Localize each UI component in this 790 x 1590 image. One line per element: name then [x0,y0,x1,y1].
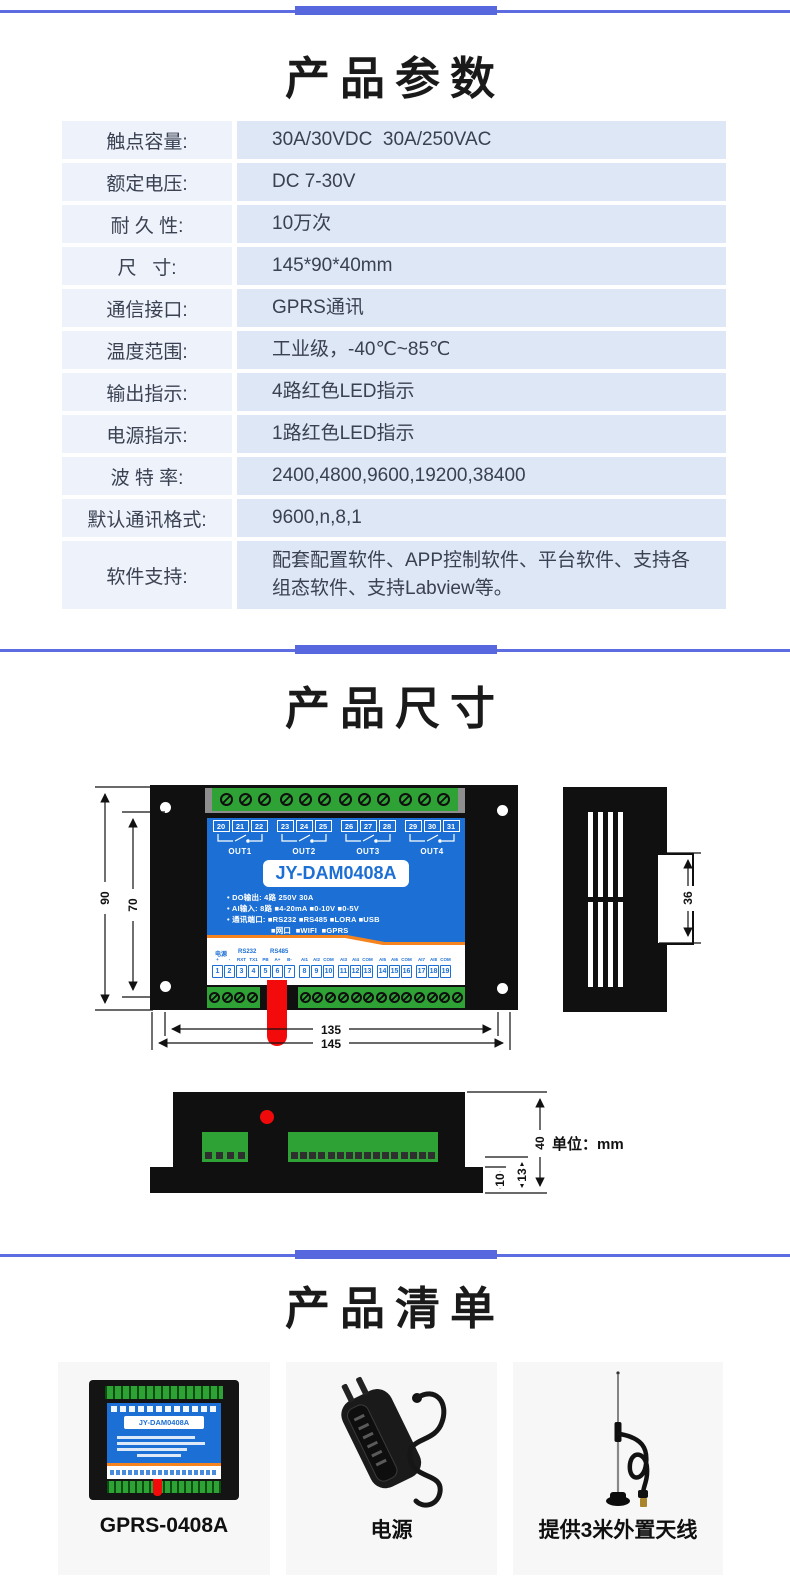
terminal-number: 21 [232,820,249,832]
pin-number: 3 [236,965,247,978]
mini-antenna-connector [153,1479,162,1496]
terminal-number: 22 [251,820,268,832]
spec-row: 额定电压: DC 7-30V [62,163,726,201]
output-terminal-row: 202122 OUT1 232425 OUT2 262728 OUT3 [211,820,461,856]
section-divider [0,6,790,18]
screw [351,992,362,1003]
product-card-power: 电源 [286,1362,497,1575]
spec-table: 触点容量: 30A/30VDC 30A/250VAC 额定电压: DC 7-30… [62,121,726,613]
spec-label: 输出指示: [62,373,232,411]
pin-label: AI2 [313,956,320,964]
pin-column: B-7 [284,956,295,978]
svg-text:40: 40 [533,1136,547,1150]
pin-number: 7 [284,965,295,978]
terminal-pins [291,1152,435,1159]
section-title-product-list: 产品清单 [0,1272,790,1337]
terminal-number: 25 [315,820,332,832]
spec-value: 10万次 [237,205,726,243]
section-title-dimensions: 产品尺寸 [0,672,790,737]
vent-slot [618,902,623,987]
relay-symbol [276,833,332,847]
spec-value: GPRS通讯 [237,289,726,327]
svg-text:10: 10 [493,1173,507,1187]
screw [299,793,312,806]
divider-bar [295,645,497,654]
relay-symbol [404,833,460,847]
terminal-screws [399,793,450,806]
mounting-hole [497,983,508,994]
terminal-number: 29 [405,820,422,832]
vent-slot [588,902,593,987]
screw [300,1152,307,1159]
rs232-header: RS232 [238,949,256,955]
spec-row: 耐 久 性: 10万次 [62,205,726,243]
pin-label: COM [323,956,334,964]
relay-symbol [212,833,268,847]
panel-spec-line: • 通讯端口: ■RS232 ■RS485 ■LORA ■USB [227,914,461,925]
terminal-screws [280,793,331,806]
screw [238,1152,245,1159]
section-divider [0,1250,790,1262]
pin-label: RXT [237,956,246,964]
terminal-number: 20 [213,820,230,832]
screw [220,793,233,806]
spec-value: 1路红色LED指示 [237,415,726,453]
out-label: OUT2 [275,847,333,856]
screw [216,1152,223,1159]
screw [247,992,258,1003]
spec-value: 4路红色LED指示 [237,373,726,411]
top-terminal-strip [205,788,465,813]
screw [309,1152,316,1159]
pin-label: AI6 [391,956,398,964]
spec-row: 电源指示: 1路红色LED指示 [62,415,726,453]
vent-slot [598,902,603,987]
pin-label: COM [362,956,373,964]
screw [318,793,331,806]
screw [280,793,293,806]
pin-label: AI8 [430,956,437,964]
pin-number: 14 [377,965,388,978]
screw [439,992,450,1003]
mini-io-numbers [110,1470,218,1475]
bottom-view-flange [150,1167,483,1193]
device-side-view [563,787,667,1012]
orange-stripe [207,934,465,948]
out-label: OUT4 [403,847,461,856]
pin-number: 16 [401,965,412,978]
spec-row: 输出指示: 4路红色LED指示 [62,373,726,411]
screw [437,793,450,806]
screw [205,1152,212,1159]
pin-label: AI5 [379,956,386,964]
terminal-number: 23 [277,820,294,832]
antenna-image [548,1364,688,1514]
panel-spec-line: • DO输出: 4路 250V 30A [227,892,461,903]
pin-column: AI717 [416,956,427,978]
svg-text:70: 70 [126,898,140,912]
screw [355,1152,362,1159]
pin-number: 12 [350,965,361,978]
svg-text:135: 135 [321,1023,341,1037]
pin-column: COM13 [362,956,373,978]
screw [338,992,349,1003]
product-card-module: JY-DAM0408A GPRS-0408A [58,1362,270,1575]
screw [391,1152,398,1159]
pin-column: PB5 [260,956,271,978]
device-front-view: 202122 OUT1 232425 OUT2 262728 OUT3 [150,785,518,1010]
spec-row: 软件支持: 配套配置软件、APP控制软件、平台软件、支持各组态软件、支持Labv… [62,541,726,609]
vent-slot [608,812,613,897]
pin-number: 11 [338,965,349,978]
mini-terminal-numbers [111,1406,217,1412]
spec-value: 2400,4800,9600,19200,38400 [237,457,726,495]
pin-column: AI18 [299,956,310,978]
pin-row: +1-2RXT3TX14PB5A+6B-7 AI18AI29COM10 AI31… [212,956,451,978]
pin-label: + [216,956,219,964]
divider-bar [295,1250,497,1259]
rs485-header: RS485 [270,949,288,955]
section-title-parameters: 产品参数 [0,42,790,107]
screw [234,992,245,1003]
spec-label: 耐 久 性: [62,205,232,243]
panel-spec-list: • DO输出: 4路 250V 30A• AI输入: 8路 ■4-20mA ■0… [227,892,461,936]
io-label-strip: 电源 RS232 RS485 +1-2RXT3TX14PB5A+6B-7 AI1… [207,948,465,985]
spec-row: 通信接口: GPRS通讯 [62,289,726,327]
spec-value: 30A/30VDC 30A/250VAC [237,121,726,159]
bottom-view-terminal [288,1132,438,1162]
pin-column: +1 [212,956,223,978]
screw [209,992,220,1003]
output-group: 232425 OUT2 [275,820,333,856]
screw [346,1152,353,1159]
power-adapter-image [321,1368,461,1513]
screw [339,793,352,806]
screw [358,793,371,806]
mini-spec-line [137,1454,181,1457]
product-label: GPRS-0408A [58,1514,270,1538]
vent-slot [598,812,603,897]
screw [389,992,400,1003]
pin-number: 15 [389,965,400,978]
output-group: 262728 OUT3 [339,820,397,856]
pin-label: COM [401,956,412,964]
out-label: OUT3 [339,847,397,856]
screw [427,992,438,1003]
pin-number: 18 [428,965,439,978]
pin-column: -2 [224,956,235,978]
screw [300,992,311,1003]
bottom-terminal-left [207,987,260,1008]
screw [377,793,390,806]
terminal-pins [205,1152,245,1159]
output-group: 202122 OUT1 [211,820,269,856]
section-divider [0,645,790,657]
din-clip-side [656,853,694,945]
spec-label: 额定电压: [62,163,232,201]
pin-column: COM19 [440,956,451,978]
pin-column: AI514 [377,956,388,978]
mini-top-terminals [105,1386,223,1399]
screw [401,1152,408,1159]
pin-label: COM [440,956,451,964]
spec-label: 尺 寸: [62,247,232,285]
spec-label: 波 特 率: [62,457,232,495]
spec-value: 配套配置软件、APP控制软件、平台软件、支持各组态软件、支持Labview等。 [237,541,726,609]
pin-number: 9 [311,965,322,978]
screw [376,992,387,1003]
screw [373,1152,380,1159]
screw [363,992,374,1003]
product-detail-page: 产品参数 触点容量: 30A/30VDC 30A/250VAC 额定电压: DC… [0,0,790,1590]
spec-row: 温度范围: 工业级，-40℃~85℃ [62,331,726,369]
mounting-hole [160,802,171,813]
pin-label: B- [287,956,292,964]
screw [452,992,463,1003]
screw [318,1152,325,1159]
product-image-module: JY-DAM0408A [89,1376,239,1504]
screw [222,992,233,1003]
vent-slot [588,812,593,897]
spec-value: 9600,n,8,1 [237,499,726,537]
model-plate: JY-DAM0408A [263,860,409,887]
terminal-number: 27 [360,820,377,832]
screw [337,1152,344,1159]
divider-bar [295,6,497,15]
svg-text:145: 145 [321,1037,341,1051]
spec-row: 尺 寸: 145*90*40mm [62,247,726,285]
svg-text:90: 90 [98,891,112,905]
antenna-connector [267,980,287,1046]
mini-front-panel: JY-DAM0408A [107,1403,221,1463]
pin-number: 2 [224,965,235,978]
screw [227,1152,234,1159]
pin-column: AI412 [350,956,361,978]
screw [325,992,336,1003]
front-panel: 202122 OUT1 232425 OUT2 262728 OUT3 [207,818,465,948]
terminal-block [212,788,458,811]
screw [401,992,412,1003]
pin-number: 5 [260,965,271,978]
terminal-number: 30 [424,820,441,832]
spec-label: 温度范围: [62,331,232,369]
out-label: OUT1 [211,847,269,856]
pin-number: 4 [248,965,259,978]
vent-slot [608,902,613,987]
screw [399,793,412,806]
screw [382,1152,389,1159]
pin-number: 10 [323,965,334,978]
screw [291,1152,298,1159]
pin-label: AI1 [301,956,308,964]
bottom-terminal-right [298,987,465,1008]
spec-label: 软件支持: [62,541,232,609]
spec-value: 145*90*40mm [237,247,726,285]
screw [312,992,323,1003]
pin-label: PB [262,956,268,964]
terminal-number: 26 [341,820,358,832]
pin-column: A+6 [272,956,283,978]
screw [328,1152,335,1159]
pin-column: AI818 [428,956,439,978]
screw [258,793,271,806]
mini-bottom-terminals [107,1481,221,1493]
spec-row: 波 特 率: 2400,4800,9600,19200,38400 [62,457,726,495]
pin-column: COM16 [401,956,412,978]
screw [410,1152,417,1159]
pin-label: TX1 [249,956,257,964]
pin-label: - [229,956,231,964]
svg-text:13: 13 [515,1168,529,1182]
mounting-hole [497,805,508,816]
screw [239,793,252,806]
mini-spec-line [117,1442,205,1445]
pin-column: RXT3 [236,956,247,978]
pin-number: 1 [212,965,223,978]
pin-number: 6 [272,965,283,978]
product-label: 提供3米外置天线 [513,1514,723,1544]
product-label: 电源 [286,1514,497,1544]
screw [364,1152,371,1159]
vent-slot [618,812,623,897]
spec-label: 通信接口: [62,289,232,327]
mini-spec-line [117,1436,195,1439]
terminal-number: 24 [296,820,313,832]
output-group: 293031 OUT4 [403,820,461,856]
pin-number: 17 [416,965,427,978]
screw [414,992,425,1003]
pin-label: AI3 [340,956,347,964]
terminal-number: 28 [379,820,396,832]
unit-note: 单位：mm [552,1133,624,1154]
spec-label: 电源指示: [62,415,232,453]
pin-column: AI615 [389,956,400,978]
pin-column: AI311 [338,956,349,978]
pin-column: COM10 [323,956,334,978]
pin-number: 19 [440,965,451,978]
pin-label: A+ [275,956,281,964]
mini-io-strip [107,1466,221,1479]
product-card-antenna: 提供3米外置天线 [513,1362,723,1575]
spec-row: 触点容量: 30A/30VDC 30A/250VAC [62,121,726,159]
spec-value: 工业级，-40℃~85℃ [237,331,726,369]
mini-spec-line [117,1448,187,1451]
bottom-view-connector-dot [260,1110,274,1124]
terminal-number: 31 [443,820,460,832]
spec-label: 默认通讯格式: [62,499,232,537]
bottom-view-terminal [202,1132,248,1162]
mounting-hole [160,981,171,992]
screw [428,1152,435,1159]
pin-number: 8 [299,965,310,978]
relay-symbol [340,833,396,847]
pin-label: AI4 [352,956,359,964]
terminal-screws [220,793,271,806]
pin-number: 13 [362,965,373,978]
screw [419,1152,426,1159]
pin-column: AI29 [311,956,322,978]
mini-model-plate: JY-DAM0408A [124,1416,204,1429]
terminal-screws [339,793,390,806]
screw [418,793,431,806]
pin-label: AI7 [418,956,425,964]
spec-row: 默认通讯格式: 9600,n,8,1 [62,499,726,537]
panel-spec-line: • AI输入: 8路 ■4-20mA ■0-10V ■0-5V [227,903,461,914]
spec-label: 触点容量: [62,121,232,159]
spec-value: DC 7-30V [237,163,726,201]
dimension-drawing: 202122 OUT1 232425 OUT2 262728 OUT3 [0,745,790,1210]
pin-column: TX14 [248,956,259,978]
